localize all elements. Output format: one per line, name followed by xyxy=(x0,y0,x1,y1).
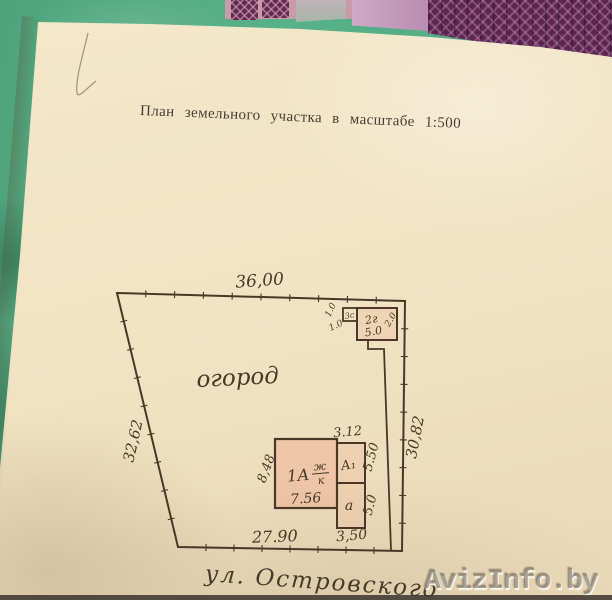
shed-dim-2: 1.0 xyxy=(324,301,339,318)
boundary-tick xyxy=(120,320,127,322)
dim-annex-a-width: 3,50 xyxy=(335,527,368,546)
land-plot-drawing: 36,00 32,62 30,82 27.90 3,50 огород 3.12… xyxy=(90,270,430,565)
house-material-top: ж xyxy=(311,460,329,474)
garden-label: огород xyxy=(196,363,280,393)
dim-top: 36,00 xyxy=(235,270,285,293)
dim-left: 32,62 xyxy=(120,418,147,464)
house-label: 1А ж к xyxy=(286,460,330,489)
maroon-chevron-block xyxy=(231,0,258,20)
gray-stripe xyxy=(296,0,346,22)
boundary-tick xyxy=(168,518,175,520)
house-number: 1А xyxy=(286,465,310,486)
photo-of-plan-document: План земельного участка в масштабе 1:500… xyxy=(0,0,612,600)
annex-a1-label: А₁ xyxy=(339,457,357,475)
checkmark-stroke xyxy=(77,33,96,95)
shed-label: 3с xyxy=(344,310,355,321)
dim-annex-a1-width: 3.12 xyxy=(333,424,363,441)
table-edge-strip xyxy=(0,595,612,600)
boundary-tick xyxy=(141,405,148,407)
maroon-chevron-block xyxy=(262,0,289,18)
dim-bottom: 27.90 xyxy=(251,526,298,547)
annex-a-label: а xyxy=(345,498,353,514)
dim-right: 30,82 xyxy=(402,414,428,460)
house-material-bottom: к xyxy=(317,474,325,487)
house-material-fraction: ж к xyxy=(311,460,330,486)
pen-checkmark xyxy=(60,25,120,105)
boundary-tick xyxy=(148,433,155,435)
dim-house-width: 7.56 xyxy=(290,490,322,508)
avizinfo-watermark: AvizInfo.by xyxy=(424,566,598,597)
